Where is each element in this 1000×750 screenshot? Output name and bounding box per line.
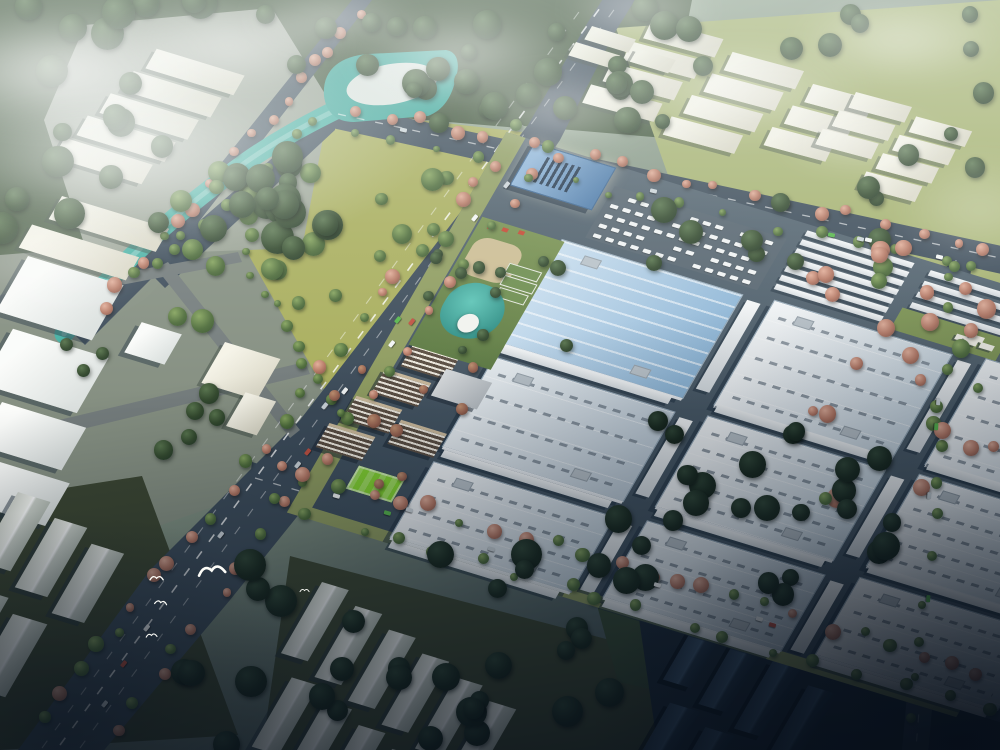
parked-car	[739, 232, 749, 238]
parked-car	[728, 252, 738, 258]
dormitory-strip	[794, 248, 904, 286]
car	[408, 318, 415, 326]
car	[857, 236, 865, 241]
tree	[665, 425, 684, 444]
small-house	[978, 342, 994, 351]
tree	[360, 313, 369, 322]
tree	[285, 97, 293, 105]
roof-vent-row	[711, 432, 867, 482]
parked-car	[715, 248, 725, 254]
tree	[490, 287, 501, 298]
parked-car	[704, 267, 714, 273]
tree	[427, 223, 440, 236]
rooftop-unit	[665, 536, 687, 550]
tree	[942, 364, 953, 375]
small-house	[962, 337, 978, 346]
ground-forest-top-center	[365, 0, 692, 138]
ground-layer	[0, 0, 1000, 750]
building-slab	[665, 727, 736, 750]
tree	[451, 126, 465, 140]
factory-hall-blue-roof	[501, 239, 743, 399]
tree	[468, 177, 478, 187]
parked-car	[640, 202, 650, 208]
parked-car	[673, 246, 683, 252]
tree	[454, 69, 479, 94]
car	[503, 181, 510, 189]
parked-car	[627, 198, 637, 204]
tree	[397, 472, 406, 481]
tree	[456, 192, 471, 207]
grass-verge	[287, 502, 963, 717]
tree	[850, 357, 863, 370]
annex-building	[635, 417, 693, 498]
roof-vent-row	[843, 628, 1000, 679]
building-slab	[319, 725, 386, 750]
tree	[731, 498, 751, 518]
tree	[148, 212, 169, 233]
tree	[708, 181, 717, 190]
tree	[272, 141, 304, 173]
building-slab	[859, 171, 923, 202]
car	[143, 624, 150, 632]
roof-vent-row	[485, 395, 643, 446]
tree	[185, 624, 196, 635]
tree	[590, 149, 601, 160]
building-slab	[663, 116, 743, 153]
tree	[313, 374, 323, 384]
tree	[553, 153, 564, 164]
green-court	[890, 307, 1000, 360]
lake-plaza-island	[343, 56, 441, 111]
tree	[945, 690, 956, 701]
tree	[931, 477, 943, 489]
tree	[682, 180, 691, 189]
building-slab	[314, 606, 382, 685]
parking-lot	[585, 186, 787, 290]
tree	[575, 548, 589, 562]
playground-sand	[457, 234, 526, 286]
tree	[107, 108, 136, 137]
car	[471, 214, 478, 222]
tree	[792, 504, 810, 522]
cloud	[110, 5, 350, 85]
parked-car	[709, 234, 719, 240]
tree	[239, 454, 253, 468]
tree	[261, 291, 269, 299]
tree	[88, 636, 103, 651]
tree	[367, 414, 381, 428]
top-haze	[0, 0, 1000, 750]
tree	[393, 532, 405, 544]
factory-hall	[866, 474, 1000, 623]
tree	[178, 660, 204, 686]
parked-car	[652, 205, 662, 211]
car	[928, 493, 932, 500]
parked-car	[684, 227, 694, 233]
building-slab	[782, 246, 919, 300]
tree	[309, 54, 321, 66]
residential-dormitory	[343, 396, 403, 434]
parked-car	[628, 221, 638, 227]
tree	[330, 657, 354, 681]
tree	[690, 623, 700, 633]
building-slab	[0, 256, 124, 340]
parked-car	[752, 236, 762, 242]
annex-building	[926, 461, 1000, 522]
cloud	[240, 0, 420, 50]
road-park	[145, 104, 335, 288]
rooftop-unit	[995, 587, 1000, 601]
tree	[920, 285, 934, 299]
tree	[429, 113, 449, 133]
tree	[119, 72, 142, 95]
tree	[154, 440, 174, 460]
tree	[663, 510, 684, 531]
tree	[806, 271, 820, 285]
car	[332, 493, 340, 498]
tree	[292, 296, 306, 310]
parked-car	[653, 229, 663, 235]
tree	[965, 157, 986, 178]
tree	[126, 603, 135, 612]
factory-hall	[655, 415, 887, 561]
tree	[113, 725, 124, 736]
building-slab	[448, 701, 516, 750]
annex-building	[602, 599, 773, 657]
tree	[239, 205, 258, 224]
building-slab	[815, 129, 879, 160]
tree	[308, 117, 317, 126]
tree	[806, 654, 819, 667]
tree	[229, 191, 256, 218]
tree	[832, 478, 856, 502]
tree	[936, 440, 948, 452]
tree	[473, 151, 485, 163]
tree	[902, 347, 919, 364]
tree	[952, 339, 971, 358]
roof-vent-row	[853, 611, 1000, 662]
building-slab	[892, 135, 956, 166]
lane-marking-0	[60, 8, 600, 745]
parked-car	[635, 235, 645, 241]
tree	[487, 221, 496, 230]
factory-hall	[713, 300, 953, 460]
building-slab	[0, 492, 51, 571]
tree	[519, 532, 534, 547]
tree	[433, 146, 440, 153]
building-slab	[582, 84, 662, 121]
parked-car	[610, 227, 620, 233]
tree	[988, 441, 999, 452]
clouds-layer	[0, 0, 1000, 750]
tree	[255, 528, 267, 540]
tree	[361, 528, 369, 536]
tree	[15, 0, 42, 20]
parked-car	[641, 225, 651, 231]
rooftop-unit	[512, 373, 534, 387]
tree	[780, 37, 803, 60]
building-slab	[764, 127, 835, 162]
rooftop-unit	[580, 255, 602, 269]
road-right	[902, 252, 972, 750]
building-slab	[381, 654, 449, 733]
tree	[265, 585, 297, 617]
road-left-2	[8, 362, 310, 446]
tree	[867, 540, 891, 564]
tree	[171, 659, 198, 686]
tree	[944, 273, 953, 282]
tree	[670, 574, 685, 589]
tree	[511, 539, 542, 570]
building-slab	[0, 614, 47, 697]
ground-ground-bottom-right	[636, 598, 1000, 750]
tree	[548, 23, 565, 40]
round-pavilion	[453, 311, 482, 335]
tree	[930, 400, 943, 413]
tree	[477, 329, 488, 340]
tree	[313, 360, 327, 374]
tree	[781, 199, 790, 208]
tree	[223, 588, 231, 596]
tree	[246, 272, 254, 280]
road-canalside	[70, 0, 372, 345]
tree	[455, 519, 463, 527]
tree	[516, 83, 541, 108]
tree	[246, 203, 259, 216]
tree	[126, 697, 138, 709]
rooftop-unit	[781, 527, 803, 541]
tree	[964, 323, 979, 338]
tree	[969, 668, 982, 681]
flying-bird	[150, 577, 163, 580]
tree	[351, 129, 359, 137]
gate-building-blue-roof	[510, 143, 617, 211]
tree	[772, 583, 795, 606]
factory-hall	[814, 577, 1000, 711]
tree	[646, 255, 662, 271]
ground-tree-belt-right	[795, 238, 1000, 588]
building-slab	[602, 63, 682, 100]
tree	[342, 610, 365, 633]
annex-building	[580, 522, 632, 594]
tree	[247, 129, 256, 138]
tree	[689, 472, 716, 499]
tree	[147, 568, 161, 582]
tree	[159, 668, 171, 680]
parked-car	[692, 264, 702, 270]
tree	[716, 631, 728, 643]
tree	[470, 691, 489, 710]
tree	[334, 343, 347, 356]
tree	[186, 531, 198, 543]
rooftop-unit	[878, 593, 900, 607]
tree	[274, 197, 306, 229]
parked-car	[678, 236, 688, 242]
tree	[557, 641, 575, 659]
roof-vent-row	[631, 571, 787, 621]
tree	[374, 250, 386, 262]
tree	[444, 276, 456, 288]
car	[217, 531, 224, 539]
parked-car	[685, 250, 695, 256]
tree	[393, 496, 407, 510]
tree	[423, 291, 434, 302]
tree	[370, 490, 380, 500]
parked-car	[671, 223, 681, 229]
tree	[341, 412, 354, 425]
cloud	[610, 45, 870, 135]
tree	[463, 698, 484, 719]
building-slab	[0, 402, 86, 470]
tree	[200, 215, 227, 242]
roof-vent-row	[621, 588, 777, 638]
tree	[464, 720, 490, 746]
rooftop-unit	[938, 490, 960, 504]
roof-vent-row	[743, 376, 899, 426]
building-slab	[201, 342, 280, 400]
tree	[229, 562, 242, 575]
roof-vent-row	[766, 337, 922, 387]
building-slab	[19, 224, 139, 280]
tree	[53, 123, 71, 141]
building-slab	[15, 518, 88, 597]
tree	[198, 219, 211, 232]
tree	[269, 184, 301, 216]
tree	[932, 508, 943, 519]
tree	[840, 205, 850, 215]
factory-hall	[602, 520, 825, 652]
rooftop-unit	[944, 676, 966, 690]
building-slab	[281, 582, 349, 661]
roof-vent-row	[966, 415, 1000, 466]
building-slab	[568, 42, 620, 69]
parked-car	[710, 258, 720, 264]
dormitory-strip	[779, 275, 889, 313]
factory-hall	[389, 461, 615, 593]
ground-forest-southeast	[560, 470, 945, 750]
tree	[151, 135, 173, 157]
roof-vent-row	[894, 540, 1000, 591]
tree	[942, 256, 952, 266]
parked-car	[667, 256, 677, 262]
car	[650, 189, 658, 194]
tree	[566, 617, 589, 640]
tree	[818, 33, 842, 57]
roof-vent-row	[922, 491, 1000, 542]
tree	[977, 299, 997, 319]
tree	[415, 77, 437, 99]
tree	[280, 214, 292, 226]
annex-building	[813, 658, 989, 718]
tree	[455, 267, 467, 279]
vehicles-layer	[0, 0, 1000, 750]
garden-pond	[429, 277, 516, 346]
tree	[295, 467, 310, 482]
parked-car	[634, 211, 644, 217]
tree	[890, 244, 900, 254]
parked-car	[703, 244, 713, 250]
rooftop-unit	[570, 468, 592, 482]
tree	[851, 14, 869, 32]
tree	[651, 197, 677, 223]
tree	[616, 556, 629, 569]
tree	[573, 177, 579, 183]
tree	[617, 156, 628, 167]
tree	[719, 209, 726, 216]
tree	[614, 107, 640, 133]
tree	[819, 405, 836, 422]
tree	[159, 556, 175, 572]
tree	[526, 168, 538, 180]
parked-car	[604, 214, 614, 220]
tree	[242, 186, 260, 204]
tree	[754, 495, 780, 521]
tree	[425, 306, 433, 314]
tree	[871, 241, 889, 259]
tree	[524, 174, 532, 182]
tree	[840, 4, 861, 25]
tree	[529, 137, 541, 149]
tree	[510, 573, 518, 581]
tree	[488, 579, 507, 598]
tree	[269, 115, 279, 125]
bus	[935, 423, 939, 430]
rooftop-unit	[517, 558, 539, 572]
building-slab	[124, 322, 182, 364]
tree	[647, 169, 661, 183]
tree	[362, 13, 381, 32]
roof-vent-row	[701, 449, 857, 499]
rooftop-unit	[629, 365, 651, 379]
rooftop-unit	[839, 426, 861, 440]
tree	[160, 232, 168, 240]
tree	[327, 700, 348, 721]
tree	[943, 302, 953, 312]
annex-building	[500, 345, 672, 404]
tree	[857, 176, 880, 199]
tree	[632, 564, 659, 591]
tree	[233, 169, 255, 191]
green-roof-strip	[504, 263, 542, 283]
cloud	[0, 100, 290, 220]
dormitory-strip	[928, 270, 1000, 305]
tree	[883, 513, 901, 531]
tree	[229, 485, 240, 496]
bus	[827, 232, 835, 237]
car	[304, 448, 311, 456]
tree	[256, 187, 279, 210]
tree	[279, 173, 297, 191]
tree	[739, 451, 766, 478]
tree	[138, 257, 150, 269]
tree	[477, 131, 489, 143]
tree	[825, 624, 841, 640]
tree	[783, 425, 803, 445]
tree	[242, 248, 249, 255]
lane-marking-4	[255, 478, 1000, 696]
tree	[787, 253, 804, 270]
canal	[64, 66, 438, 334]
tree	[485, 652, 512, 679]
tree	[825, 287, 840, 302]
tree	[234, 549, 266, 581]
parked-car	[729, 275, 739, 281]
tree	[224, 163, 250, 189]
trees-layer	[0, 0, 1000, 750]
dormitory-strip	[799, 239, 909, 277]
red-canopy	[487, 225, 495, 230]
parked-car	[740, 255, 750, 261]
